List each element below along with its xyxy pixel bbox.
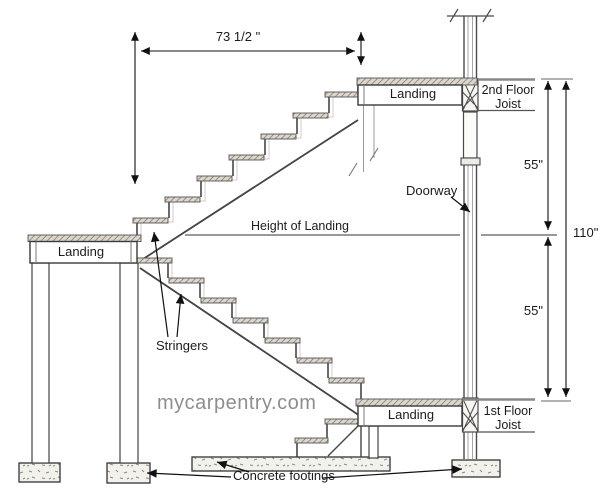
upper-stringer xyxy=(140,120,358,261)
height-of-landing-label: Height of Landing xyxy=(250,220,350,234)
middle-footing xyxy=(107,463,150,483)
wall-break-icon xyxy=(447,9,494,22)
stringers-leader-lower-arrow xyxy=(177,294,181,337)
bottom-landing-post xyxy=(369,426,378,458)
footings-leader-middle-arrow xyxy=(147,473,231,477)
second-floor-joist-label: 2nd Floor Joist xyxy=(478,83,538,112)
wall-section xyxy=(447,9,494,459)
bottom-landing-label: Landing xyxy=(361,408,461,422)
middle-landing-label: Landing xyxy=(31,245,131,259)
stringer-foot xyxy=(328,423,361,457)
top-landing-label: Landing xyxy=(363,87,463,101)
lower-height-dimension-label: 55" xyxy=(503,304,543,318)
stringers-label: Stringers xyxy=(156,339,208,353)
stair-section-diagram: 73 1/2 " Landing Landing Landing 2nd Flo… xyxy=(0,0,610,500)
ground-steps xyxy=(295,419,363,457)
upper-treads xyxy=(133,92,360,223)
doorway-label: Doorway xyxy=(406,184,457,198)
top-landing-support xyxy=(349,105,378,176)
run-dimension-label: 73 1/2 " xyxy=(188,30,288,44)
upper-height-dimension-label: 55" xyxy=(503,158,543,172)
wall-footing xyxy=(452,460,500,477)
left-post xyxy=(32,263,49,463)
watermark-text: mycarpentry.com xyxy=(157,392,316,414)
lower-treads xyxy=(137,258,364,383)
lower-flight xyxy=(137,258,364,399)
right-post xyxy=(120,263,138,463)
door-frame xyxy=(461,112,480,165)
first-floor-joist-label: 1st Floor Joist xyxy=(478,404,538,433)
concrete-footings-label: Concrete footings xyxy=(233,469,335,483)
left-footing xyxy=(19,463,60,482)
first-floor-blocking xyxy=(463,398,479,432)
doorway-leader-arrow xyxy=(451,197,470,212)
upper-flight xyxy=(133,84,360,235)
total-height-dimension-label: 110" xyxy=(573,226,598,240)
